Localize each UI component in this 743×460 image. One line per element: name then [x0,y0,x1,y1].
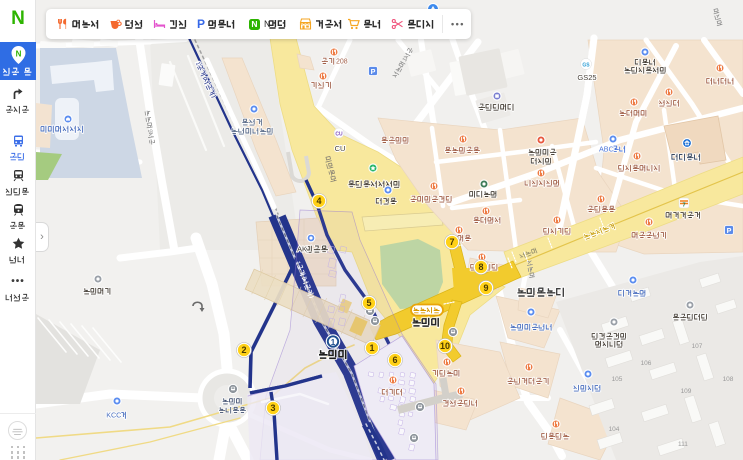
svg-text:208: 208 [336,59,348,66]
svg-text:1: 1 [331,338,336,347]
svg-text:9: 9 [483,283,488,293]
svg-text:7: 7 [449,237,454,247]
svg-text:106: 106 [641,360,652,367]
svg-text:104: 104 [609,426,620,433]
svg-text:2: 2 [241,345,246,355]
svg-text:3: 3 [270,403,275,413]
svg-text:107: 107 [692,343,703,350]
svg-text:4: 4 [316,196,321,206]
svg-text:P: P [727,226,732,235]
svg-text:N: N [264,19,271,29]
svg-text:KCC: KCC [106,411,121,420]
svg-text:10: 10 [440,341,450,351]
svg-text:1: 1 [369,343,374,353]
svg-text:108: 108 [723,376,734,383]
svg-text:P: P [371,67,376,76]
svg-text:7: 7 [682,203,685,209]
svg-text:GS25: GS25 [577,73,596,82]
svg-text:6: 6 [392,355,397,365]
svg-text:AK: AK [297,245,307,254]
svg-text:105: 105 [612,376,623,383]
svg-text:5: 5 [366,298,371,308]
svg-text:CU: CU [335,132,343,138]
svg-text:ABC: ABC [599,145,614,154]
svg-text:109: 109 [681,388,692,395]
svg-text:GS: GS [582,63,590,69]
svg-text:N: N [15,50,21,59]
svg-text:CU: CU [335,144,346,153]
svg-text:8: 8 [478,262,483,272]
svg-text:111: 111 [678,441,688,448]
